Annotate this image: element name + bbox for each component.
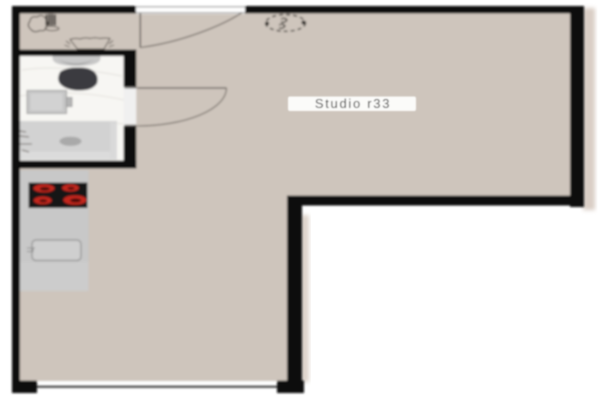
svg-text:Studio r33: Studio r33 <box>315 96 391 111</box>
